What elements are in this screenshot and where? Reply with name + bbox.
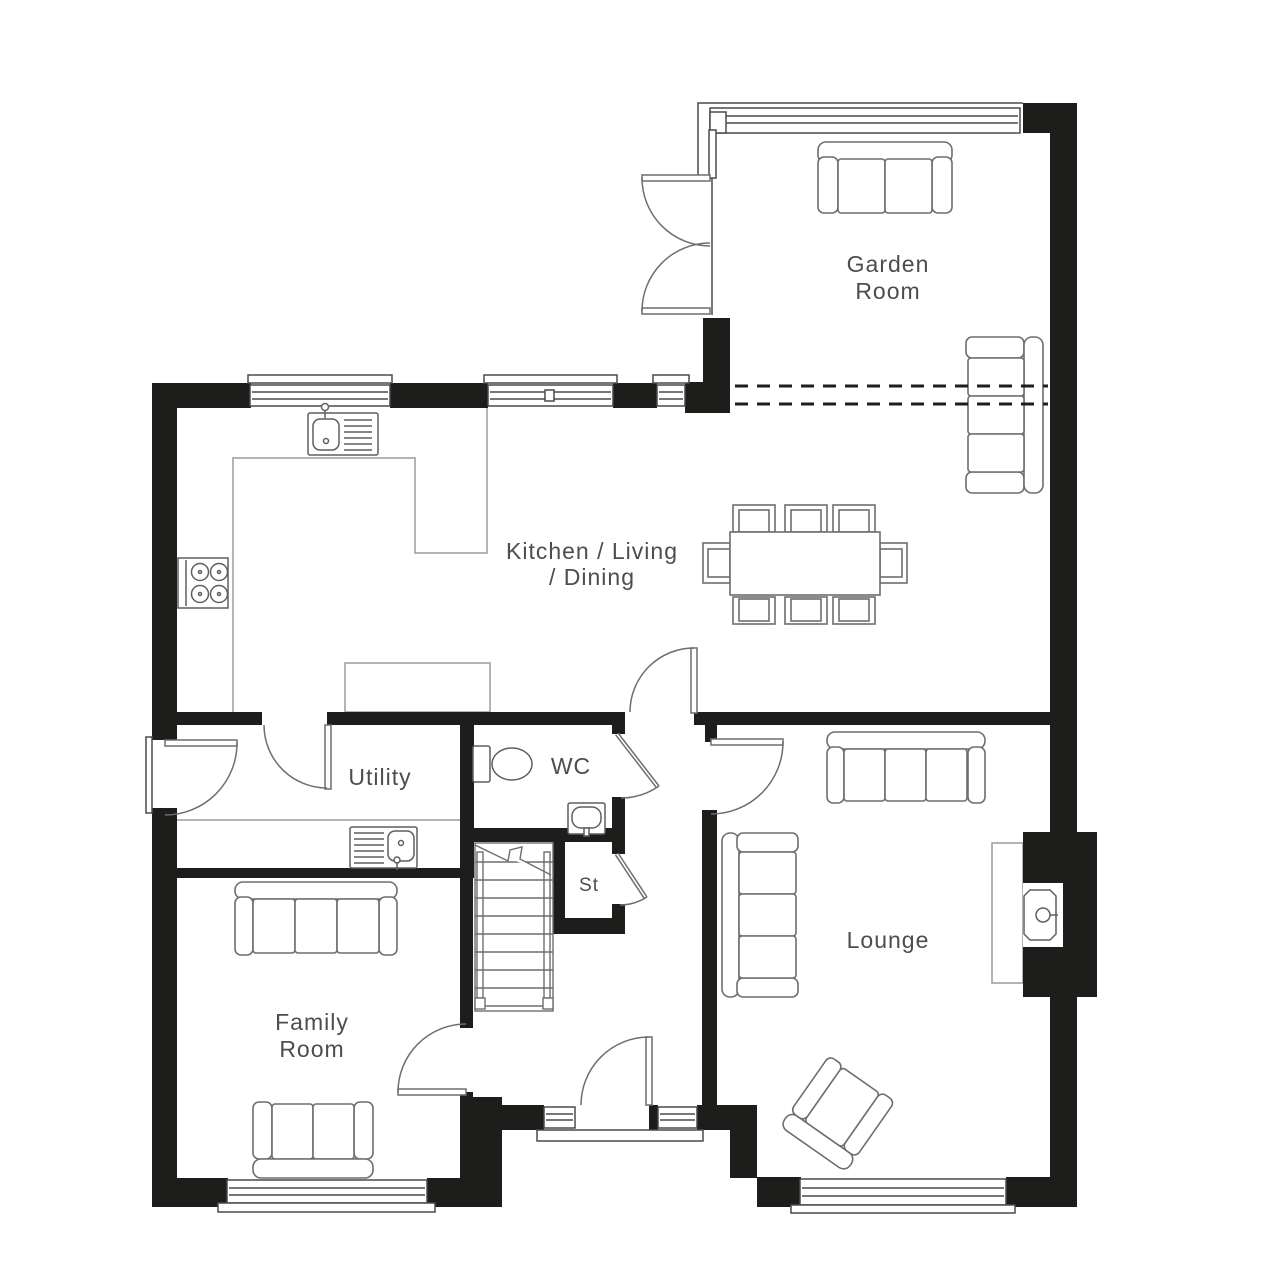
family-room-sofa (235, 882, 397, 955)
kitchen-label-line1: Kitchen / Living (506, 538, 678, 564)
family-room-loveseat (253, 1102, 373, 1178)
wall-segment (327, 712, 625, 725)
lounge-label: Lounge (847, 927, 930, 953)
floor-plan-page: Garden Room Kitchen / Living / Dining Ut… (0, 0, 1280, 1280)
family-room-label-line2: Room (279, 1036, 344, 1062)
wall-segment (152, 383, 251, 408)
wall-segment (697, 1105, 757, 1130)
wall-segment (612, 797, 625, 828)
side-door-threshold (146, 737, 152, 813)
kitchen-window-1 (248, 375, 392, 406)
wall-segment (702, 810, 717, 1107)
wall-segment (1050, 133, 1077, 1177)
dining-table (730, 532, 880, 595)
lounge-window (791, 1179, 1015, 1213)
kitchen-label-line2: / Dining (549, 564, 635, 590)
wall-segment (649, 1105, 658, 1130)
kitchen-peninsula-counter (345, 663, 490, 712)
garden-room-label-line1: Garden (847, 251, 930, 277)
kitchen-faucet (322, 404, 329, 411)
wall-segment (1006, 1177, 1077, 1207)
garden-room-sofa (818, 142, 952, 213)
lounge-sofa-side (722, 833, 798, 997)
garden-room-label-line2: Room (855, 278, 920, 304)
wall-segment (152, 808, 177, 1180)
plan-background (0, 0, 1280, 1280)
toilet (473, 746, 532, 782)
wall-segment (152, 383, 177, 740)
wall-segment (177, 868, 462, 878)
floor-plan: Garden Room Kitchen / Living / Dining Ut… (0, 0, 1280, 1280)
wall-segment (757, 1177, 801, 1207)
lounge-sofa-top (827, 732, 985, 803)
wash-basin (568, 803, 605, 836)
wall-segment (480, 1105, 544, 1130)
kitchen-window-2 (484, 375, 617, 406)
wall-segment (694, 712, 1050, 725)
wall-segment (390, 383, 488, 408)
stair-newel (475, 998, 485, 1009)
garden-room-side-sofa (966, 337, 1043, 493)
fireplace-hearth (992, 843, 1023, 983)
wall-segment (1023, 103, 1077, 133)
wall-segment (555, 918, 625, 934)
store-label: St (579, 875, 599, 896)
wall-segment (685, 382, 730, 413)
utility-label: Utility (348, 764, 411, 790)
wall-segment (460, 878, 473, 1028)
family-room-label-line1: Family (275, 1009, 349, 1035)
family-room-window (218, 1180, 435, 1212)
wc-label: WC (551, 753, 591, 779)
hob (178, 558, 228, 608)
wall-segment (460, 725, 474, 878)
kitchen-window-3 (653, 375, 689, 406)
wall-segment (613, 383, 657, 408)
stair-newel (543, 998, 553, 1009)
wall-segment (460, 1092, 473, 1182)
wall-segment (612, 842, 625, 854)
wood-stove (1024, 890, 1058, 940)
wall-segment (730, 1130, 757, 1178)
wall-segment (152, 1178, 228, 1207)
staircase (475, 843, 553, 1011)
utility-sink (350, 827, 417, 870)
wall-segment (177, 712, 262, 725)
